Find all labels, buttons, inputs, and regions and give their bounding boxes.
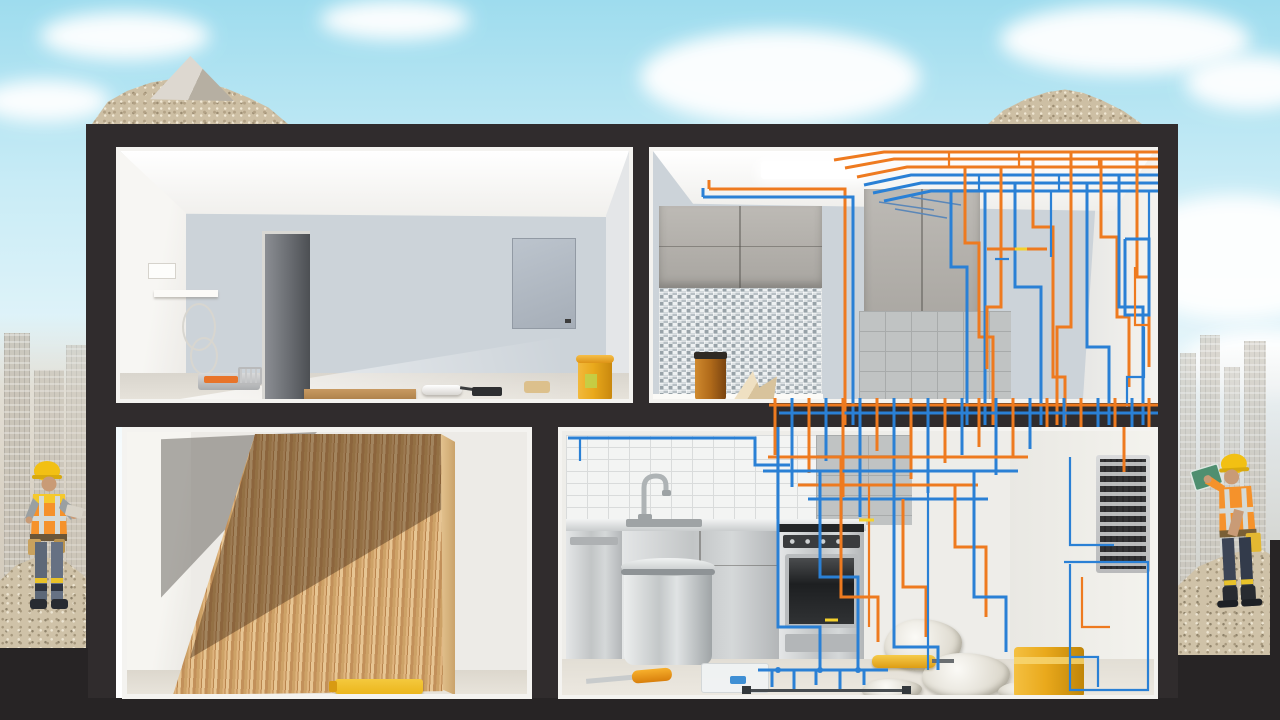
flooring-room [122,427,532,699]
paint-roller [422,385,462,395]
empty-room [116,147,633,403]
cloud [640,30,920,125]
house-wall-left [86,124,116,700]
paint-tray [198,373,260,390]
upper-pipe-network [649,147,1158,428]
panel-mark [565,319,571,323]
electrical-box [148,263,176,279]
construction-worker-right [1192,452,1272,632]
panel-edge [441,434,455,695]
sponge [524,381,550,393]
paint [204,376,238,383]
tray-grid [238,367,262,385]
cloud [40,12,210,60]
wall-panel [512,238,576,329]
house-wall-right [1158,124,1178,700]
door-opening [262,231,310,399]
wood-plank-stack [304,389,416,402]
lower-partition-wall [532,427,558,699]
yellow-level-tool [335,679,423,694]
bucket-lid [576,355,614,363]
renovation-cutaway-scene [0,0,1280,720]
hanging-wire [190,337,218,375]
house-roof-beam [86,124,1178,148]
cloud [320,0,470,40]
bucket-label [585,374,597,388]
foundation-base [0,698,1280,720]
construction-worker-left [14,458,80,630]
upper-partition-wall [633,147,649,405]
paint-bucket [578,360,612,401]
ceiling [120,151,629,217]
lower-pipe-network [558,427,1158,699]
paint-brush [472,387,502,396]
wall-shelf [154,290,218,297]
